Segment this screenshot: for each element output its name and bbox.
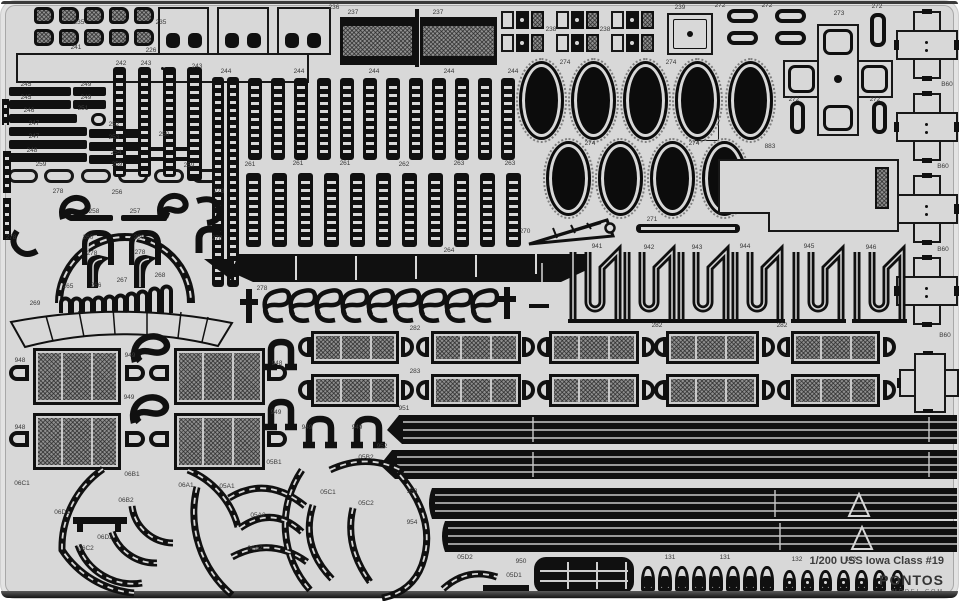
- ladder-244: [271, 78, 285, 160]
- oval-274: [571, 61, 616, 140]
- part-label-254: 254: [111, 149, 122, 156]
- core: [644, 576, 652, 588]
- tab: [922, 91, 932, 96]
- part-label-950: 950: [516, 558, 527, 565]
- part-label-06A1: 06A1: [178, 482, 193, 489]
- part-label-274: 274: [666, 59, 677, 66]
- wdot: [520, 18, 524, 22]
- vline: [370, 378, 372, 403]
- tab: [922, 9, 932, 14]
- vline: [340, 378, 342, 403]
- part-label-257: 257: [130, 208, 141, 215]
- cover: [770, 210, 897, 215]
- wdot: [630, 41, 634, 45]
- part-label-266: 266: [91, 282, 102, 289]
- vline: [850, 378, 852, 403]
- tab-282: [522, 337, 535, 357]
- part-label-264: 264: [444, 247, 455, 254]
- clip-235: [109, 7, 129, 24]
- mesh-948: [33, 413, 121, 470]
- part-label-249: 249: [81, 94, 92, 101]
- part-label-278: 278: [87, 250, 98, 257]
- square-238: [531, 34, 544, 52]
- strip-245: [9, 100, 71, 109]
- ladder-261: [376, 173, 391, 247]
- part-label-244: 244: [294, 68, 305, 75]
- part-label-278: 278: [6, 234, 17, 241]
- part-label-06C2: 06C2: [78, 545, 94, 552]
- part-label-243: 243: [141, 60, 152, 67]
- part-label-952: 952: [377, 443, 388, 450]
- sheet-title: 1/200 USS Iowa Class #19: [624, 555, 944, 567]
- part-label-268: 268: [155, 272, 166, 279]
- frame-259: [81, 169, 111, 183]
- part-label-252: 252: [109, 121, 120, 128]
- n-bracket-260: [85, 233, 158, 265]
- part-label-274: 274: [585, 140, 596, 147]
- tab: [954, 40, 959, 50]
- part-label-05B1: 05B1: [266, 459, 281, 466]
- part-label-241: 241: [71, 44, 82, 51]
- vline: [202, 417, 204, 466]
- ladder-242: [138, 67, 151, 177]
- part-label-237: 237: [348, 9, 359, 16]
- ladder-244: [478, 78, 492, 160]
- part-label-244: 244: [221, 68, 232, 75]
- slit: [641, 227, 735, 230]
- part-label-265: 265: [63, 283, 74, 290]
- dot: [925, 131, 928, 134]
- plate-883: [768, 212, 899, 232]
- frame-259: [8, 169, 38, 183]
- mesh-282: [549, 374, 639, 407]
- part-label-249: 249: [81, 81, 92, 88]
- photo-etch-fret-sheet: 2352352262412362372372382382392722722722…: [1, 1, 958, 598]
- part-label-267: 267: [117, 277, 128, 284]
- ring-272: [727, 9, 758, 23]
- tab-948: [125, 431, 145, 447]
- part-label-242: 242: [116, 60, 127, 67]
- part-label-237: 237: [433, 9, 444, 16]
- ladder-244: [248, 78, 262, 160]
- part-label-244: 244: [508, 68, 519, 75]
- tab-282: [762, 337, 775, 357]
- part-label-226: 226: [146, 47, 157, 54]
- tab-948: [267, 365, 287, 381]
- sheet-top-edge: [1, 1, 958, 4]
- post: [246, 289, 252, 323]
- mesh-282: [311, 331, 399, 364]
- post: [498, 296, 516, 302]
- part-label-06B2: 06B2: [118, 497, 133, 504]
- core: [678, 576, 686, 588]
- tab: [954, 122, 959, 132]
- square-238: [501, 34, 514, 52]
- ladder-261: [402, 173, 417, 247]
- ladder-244: [294, 78, 308, 160]
- oval-274: [675, 61, 720, 140]
- part-label-949: 949: [352, 424, 363, 431]
- vline: [608, 378, 610, 403]
- part-label-949: 949: [124, 394, 135, 401]
- part-label-258: 258: [89, 208, 100, 215]
- part-label-239: 239: [675, 4, 686, 11]
- tab-948: [149, 365, 169, 381]
- part-label-946: 946: [866, 244, 877, 251]
- vline: [91, 352, 93, 401]
- tab-282: [298, 380, 311, 400]
- ladder-244: [409, 78, 423, 160]
- square-238: [611, 11, 624, 29]
- part-label-247: 247: [29, 120, 40, 127]
- vline: [695, 378, 697, 403]
- part-label-954: 954: [407, 519, 418, 526]
- tab-282: [762, 380, 775, 400]
- vline: [578, 335, 580, 360]
- plate-236: [217, 7, 269, 55]
- sprue-bar: [3, 151, 11, 193]
- part-label-250: 250: [159, 131, 170, 138]
- part-label-272: 272: [870, 96, 881, 103]
- part-label-282: 282: [410, 325, 421, 332]
- dot: [925, 205, 928, 208]
- strip-247: [9, 140, 87, 149]
- cross-panel: [823, 105, 853, 131]
- vline: [608, 335, 610, 360]
- part-label-05B2: 05B2: [358, 454, 373, 461]
- tab-282: [654, 380, 667, 400]
- part-label-248: 248: [27, 147, 38, 154]
- window: [225, 33, 239, 48]
- ladder-242: [227, 77, 239, 287]
- part-label-238: 238: [546, 26, 557, 33]
- part-label-272: 272: [762, 2, 773, 9]
- plate-883: [718, 159, 899, 214]
- part-label-260: 260: [83, 234, 94, 241]
- square-238: [501, 11, 514, 29]
- clip-226: [34, 29, 54, 46]
- strip-247: [9, 127, 87, 136]
- strip-part-954: [442, 521, 957, 552]
- plate-236: [158, 7, 209, 55]
- part-label-944: 944: [740, 243, 751, 250]
- tab-948: [125, 365, 145, 381]
- part-label-251: 251: [78, 105, 89, 112]
- part-label-949: 949: [302, 424, 313, 431]
- vline: [460, 335, 462, 360]
- plate-236: [277, 7, 331, 55]
- mesh-282: [791, 331, 880, 364]
- oval-274: [598, 141, 643, 216]
- tab: [894, 40, 899, 50]
- ring-272: [775, 9, 806, 23]
- part-label-B60: B60: [941, 81, 953, 88]
- strip-248: [9, 153, 87, 162]
- tab-282: [522, 380, 535, 400]
- hooks-265-268: [61, 287, 171, 314]
- part-label-243: 243: [192, 63, 203, 70]
- part-label-948: 948: [15, 424, 26, 431]
- ring-251: [91, 113, 106, 126]
- square-238: [586, 34, 599, 52]
- curl-row-278: [265, 290, 497, 320]
- ladder-242: [163, 67, 176, 177]
- cover: [898, 278, 956, 304]
- square-238: [611, 34, 624, 52]
- mesh-patch: [875, 167, 889, 209]
- ladder-244: [501, 78, 515, 160]
- vline: [370, 335, 372, 360]
- clip-235: [34, 7, 54, 24]
- cross-panel: [788, 65, 815, 93]
- dot: [925, 41, 928, 44]
- part-label-883: 883: [765, 143, 776, 150]
- sprue-bar: [2, 99, 9, 125]
- part-label-245: 245: [21, 81, 32, 88]
- vline: [340, 335, 342, 360]
- part-label-245: 245: [21, 94, 32, 101]
- part-label-283: 283: [410, 368, 421, 375]
- ladder-261: [428, 173, 443, 247]
- clip-235: [84, 7, 104, 24]
- part-label-274: 274: [689, 140, 700, 147]
- part-label-261: 261: [293, 160, 304, 167]
- brand-url: MODEL.COM: [744, 589, 944, 595]
- ring-272: [870, 13, 886, 47]
- window: [188, 33, 202, 48]
- tab: [923, 351, 933, 355]
- ring-272: [775, 31, 806, 45]
- cross-panel: [823, 29, 853, 55]
- strip-part-952: [380, 450, 957, 479]
- tab: [922, 76, 932, 81]
- part-label-235: 235: [156, 19, 167, 26]
- vline: [850, 335, 852, 360]
- s-parts-278: [13, 196, 234, 282]
- square-238: [641, 11, 654, 29]
- tab: [922, 322, 932, 327]
- vline: [490, 335, 492, 360]
- vline: [460, 378, 462, 403]
- part-label-B60: B60: [937, 163, 949, 170]
- arch-part-256: [59, 233, 191, 313]
- vline: [61, 417, 63, 466]
- wdot: [520, 41, 524, 45]
- part-label-278: 278: [53, 188, 64, 195]
- clip-226: [134, 29, 154, 46]
- dot: [925, 49, 928, 52]
- part-label-B60: B60: [937, 246, 949, 253]
- cover: [898, 196, 956, 222]
- part-label-236: 236: [329, 4, 340, 11]
- ladder-244: [317, 78, 331, 160]
- mesh-282: [666, 374, 759, 407]
- tab-948: [9, 431, 29, 447]
- square-238: [556, 11, 569, 29]
- vline: [232, 352, 234, 401]
- deck-part-264: [231, 254, 591, 282]
- part-label-253: 253: [109, 134, 120, 141]
- part-label-272: 272: [872, 3, 883, 10]
- vline: [725, 378, 727, 403]
- tab-282: [401, 337, 414, 357]
- strip-part-953: [429, 488, 957, 519]
- wdot: [575, 18, 579, 22]
- tab-282: [883, 337, 896, 357]
- clip-226: [84, 29, 104, 46]
- clip-235: [134, 7, 154, 24]
- part-label-282: 282: [652, 322, 663, 329]
- part-label-278: 278: [257, 285, 268, 292]
- part-label-262: 262: [399, 161, 410, 168]
- part-label-244: 244: [369, 68, 380, 75]
- part-label-953: 953: [407, 488, 418, 495]
- ring-272: [872, 101, 887, 134]
- part-label-272: 272: [789, 96, 800, 103]
- part-label-949: 949: [125, 352, 136, 359]
- part-label-246: 246: [24, 107, 35, 114]
- ladder-244: [386, 78, 400, 160]
- part-label-06D2: 06D2: [97, 534, 113, 541]
- grate-grid: [540, 562, 628, 589]
- part-label-05D2: 05D2: [457, 554, 473, 561]
- vline: [820, 335, 822, 360]
- part-label-273: 273: [834, 10, 845, 17]
- cross-panel: [861, 65, 888, 93]
- core: [712, 576, 720, 588]
- strip-part-951: [387, 415, 957, 444]
- band-237: [340, 17, 415, 65]
- part-label-261: 261: [245, 161, 256, 168]
- ladder-242: [212, 77, 224, 287]
- tab-282: [654, 337, 667, 357]
- part-label-282: 282: [777, 322, 788, 329]
- part-label-235: 235: [74, 19, 85, 26]
- part-label-06C1: 06C1: [14, 480, 30, 487]
- part-label-05A2: 05A2: [250, 512, 265, 519]
- part-label-945: 945: [804, 243, 815, 250]
- oval-274: [728, 61, 773, 140]
- tab-282: [298, 337, 311, 357]
- core: [729, 576, 737, 588]
- post: [504, 287, 510, 319]
- part-label-951: 951: [399, 405, 410, 412]
- davit-highlights: [573, 252, 902, 321]
- frame-259: [44, 169, 74, 183]
- mesh-948: [174, 348, 265, 405]
- dot: [925, 213, 928, 216]
- core: [695, 576, 703, 588]
- bench-06D1: [73, 517, 127, 524]
- window: [285, 33, 299, 48]
- part-label-272: 272: [715, 2, 726, 9]
- part-label-942: 942: [644, 244, 655, 251]
- part-label-274: 274: [560, 59, 571, 66]
- vline: [695, 335, 697, 360]
- part-label-05A1: 05A1: [219, 483, 234, 490]
- part-label-06B1: 06B1: [124, 471, 139, 478]
- part-label-260: 260: [134, 234, 145, 241]
- divider: [415, 9, 419, 67]
- oval-274: [519, 61, 564, 140]
- clip-226: [109, 29, 129, 46]
- part-label-259: 259: [184, 162, 195, 169]
- tab-282: [416, 380, 429, 400]
- tab: [922, 173, 932, 178]
- dot: [834, 75, 842, 83]
- strip-246: [9, 114, 77, 123]
- tab: [922, 158, 932, 163]
- flag-part: [529, 259, 561, 306]
- square-238: [556, 34, 569, 52]
- mesh-282: [431, 331, 521, 364]
- mast-part-270: [529, 220, 615, 244]
- part-label-278: 278: [212, 235, 223, 242]
- part-label-270: 270: [520, 228, 531, 235]
- part-label-256: 256: [112, 189, 123, 196]
- part-label-06A2: 06A2: [247, 545, 262, 552]
- leg: [77, 524, 83, 532]
- tab-282: [777, 380, 790, 400]
- vline: [820, 378, 822, 403]
- vline: [490, 378, 492, 403]
- tab: [923, 409, 933, 413]
- mesh-282: [666, 331, 759, 364]
- part-label-B60: B60: [939, 332, 951, 339]
- mesh-282: [791, 374, 880, 407]
- ladder-261: [272, 173, 287, 247]
- core: [661, 576, 669, 588]
- cover: [898, 114, 956, 140]
- leg: [115, 524, 121, 532]
- strip-245: [9, 87, 71, 96]
- tab-948: [149, 431, 169, 447]
- ring-272: [790, 101, 805, 134]
- cover: [916, 355, 944, 411]
- vline: [202, 352, 204, 401]
- ladder-261: [298, 173, 313, 247]
- part-label-269: 269: [30, 300, 41, 307]
- ladder-261: [324, 173, 339, 247]
- ladder-244: [363, 78, 377, 160]
- part-label-238: 238: [600, 26, 611, 33]
- tab-282: [416, 337, 429, 357]
- part-label-244: 244: [444, 68, 455, 75]
- tab: [954, 204, 959, 214]
- dot: [925, 295, 928, 298]
- tab-282: [401, 380, 414, 400]
- ladder-261: [350, 173, 365, 247]
- vline: [725, 335, 727, 360]
- tab-948: [9, 365, 29, 381]
- part-label-278: 278: [214, 188, 225, 195]
- tab: [954, 286, 959, 296]
- window: [166, 33, 180, 48]
- bar-258: [69, 215, 113, 221]
- square-238: [531, 11, 544, 29]
- cover: [898, 32, 956, 58]
- davit-parts-941-946: [573, 252, 902, 321]
- window: [247, 33, 261, 48]
- tab-282: [537, 337, 550, 357]
- tab: [894, 122, 899, 132]
- part-label-948: 948: [272, 360, 283, 367]
- tab-282: [883, 380, 896, 400]
- vline: [232, 417, 234, 466]
- mesh-282: [549, 331, 639, 364]
- ladder-261: [246, 173, 261, 247]
- vline: [578, 378, 580, 403]
